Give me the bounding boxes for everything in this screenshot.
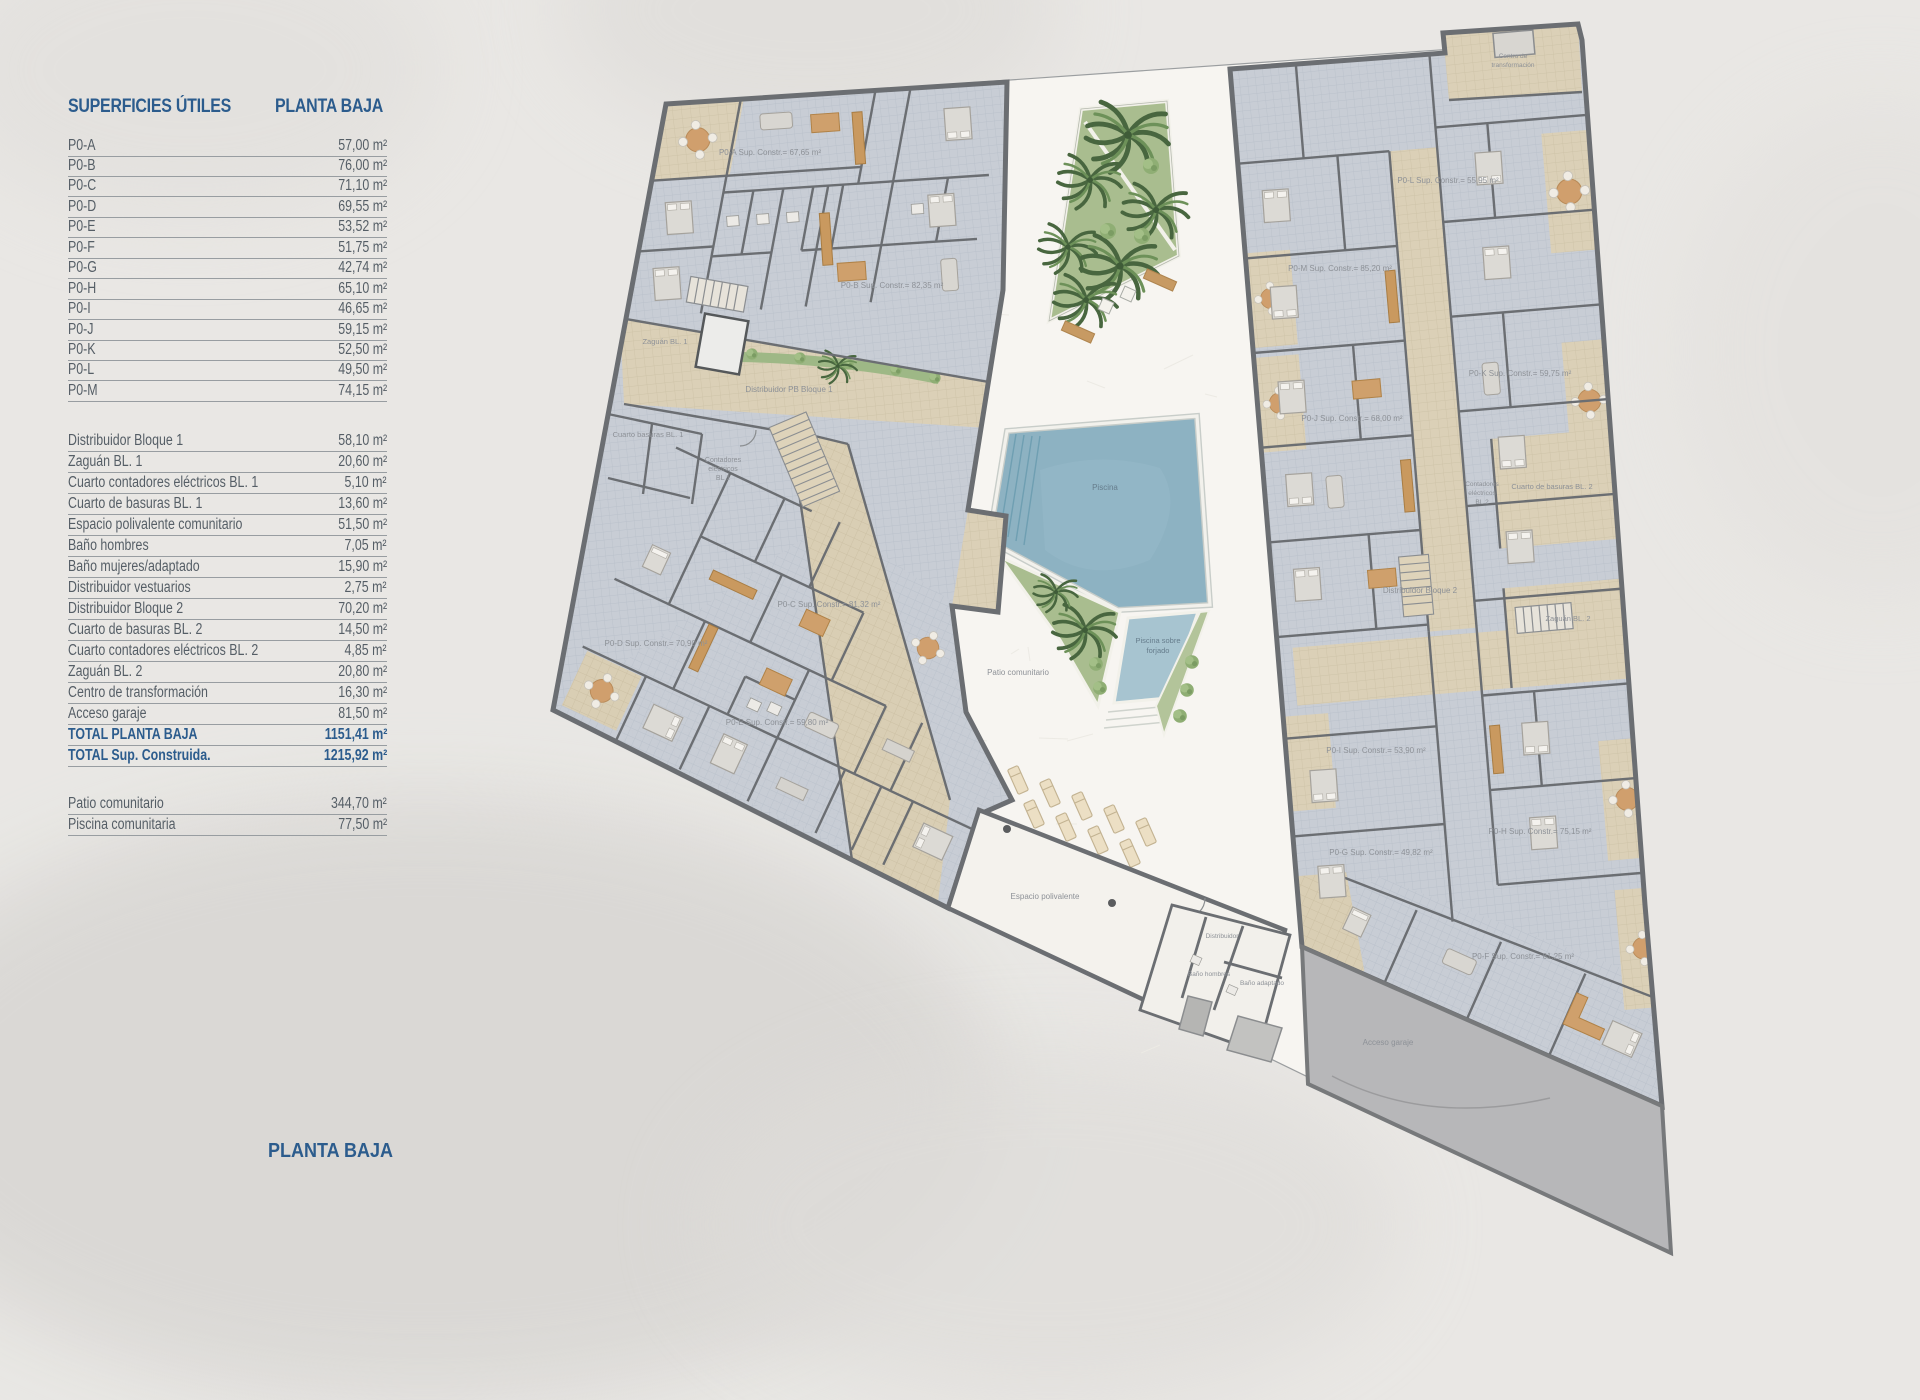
svg-text:Baño adaptado: Baño adaptado xyxy=(1240,980,1284,987)
svg-text:P0-L Sup. Constr.= 55,95 m²: P0-L Sup. Constr.= 55,95 m² xyxy=(1397,176,1499,185)
svg-text:P0-J Sup. Constr.= 68,00 m²: P0-J Sup. Constr.= 68,00 m² xyxy=(1301,414,1402,423)
svg-text:Piscina: Piscina xyxy=(1092,483,1118,492)
svg-text:Contadores: Contadores xyxy=(1465,481,1499,488)
svg-text:Acceso garaje: Acceso garaje xyxy=(1363,1038,1414,1047)
svg-text:P0-E Sup. Constr.= 59,80 m²: P0-E Sup. Constr.= 59,80 m² xyxy=(726,718,829,727)
svg-text:eléctricos: eléctricos xyxy=(1468,490,1496,497)
svg-text:Contadores: Contadores xyxy=(705,457,742,464)
svg-text:P0-C Sup. Constr.= 81,32 m²: P0-C Sup. Constr.= 81,32 m² xyxy=(778,600,881,609)
svg-text:P0-M Sup. Constr.= 85,20 m²: P0-M Sup. Constr.= 85,20 m² xyxy=(1288,264,1392,273)
svg-text:Distribuidor Bloque 2: Distribuidor Bloque 2 xyxy=(1383,586,1458,595)
svg-text:Patio comunitario: Patio comunitario xyxy=(987,668,1049,677)
svg-text:P0-I Sup. Constr.= 53,90 m²: P0-I Sup. Constr.= 53,90 m² xyxy=(1326,746,1426,755)
svg-text:BL 1: BL 1 xyxy=(716,475,730,482)
svg-text:Distribuidor: Distribuidor xyxy=(1206,933,1240,940)
svg-text:P0-F Sup. Constr.= 61,25 m²: P0-F Sup. Constr.= 61,25 m² xyxy=(1472,952,1574,961)
svg-text:forjado: forjado xyxy=(1147,646,1170,655)
svg-text:BL.2: BL.2 xyxy=(1475,499,1489,506)
svg-text:Distribuidor PB Bloque 1: Distribuidor PB Bloque 1 xyxy=(745,385,833,394)
svg-text:P0-D Sup. Constr.= 70,90 m²: P0-D Sup. Constr.= 70,90 m² xyxy=(605,639,708,648)
svg-text:transformación: transformación xyxy=(1492,62,1535,69)
svg-text:Zaguán BL. 1: Zaguán BL. 1 xyxy=(642,337,687,346)
svg-text:Cuarto de basuras BL. 2: Cuarto de basuras BL. 2 xyxy=(1511,482,1592,491)
svg-text:Espacio polivalente: Espacio polivalente xyxy=(1011,892,1080,901)
svg-text:Cuarto basuras BL. 1: Cuarto basuras BL. 1 xyxy=(613,430,684,439)
svg-text:P0-H Sup. Constr.= 75,15 m²: P0-H Sup. Constr.= 75,15 m² xyxy=(1489,827,1592,836)
svg-text:Piscina sobre: Piscina sobre xyxy=(1135,636,1180,645)
svg-text:P0-A Sup. Constr.= 67,65 m²: P0-A Sup. Constr.= 67,65 m² xyxy=(719,148,821,157)
svg-text:eléctricos: eléctricos xyxy=(708,466,738,473)
svg-text:Zaguán BL. 2: Zaguán BL. 2 xyxy=(1545,614,1590,623)
svg-text:Centro de: Centro de xyxy=(1499,53,1528,60)
svg-text:P0-K Sup. Constr.= 59,75 m²: P0-K Sup. Constr.= 59,75 m² xyxy=(1469,369,1572,378)
svg-text:P0-B Sup. Constr.= 82,35 m²: P0-B Sup. Constr.= 82,35 m² xyxy=(841,281,944,290)
svg-text:Baño hombres: Baño hombres xyxy=(1188,971,1231,978)
svg-text:P0-G Sup. Constr.= 49,82 m²: P0-G Sup. Constr.= 49,82 m² xyxy=(1329,848,1433,857)
